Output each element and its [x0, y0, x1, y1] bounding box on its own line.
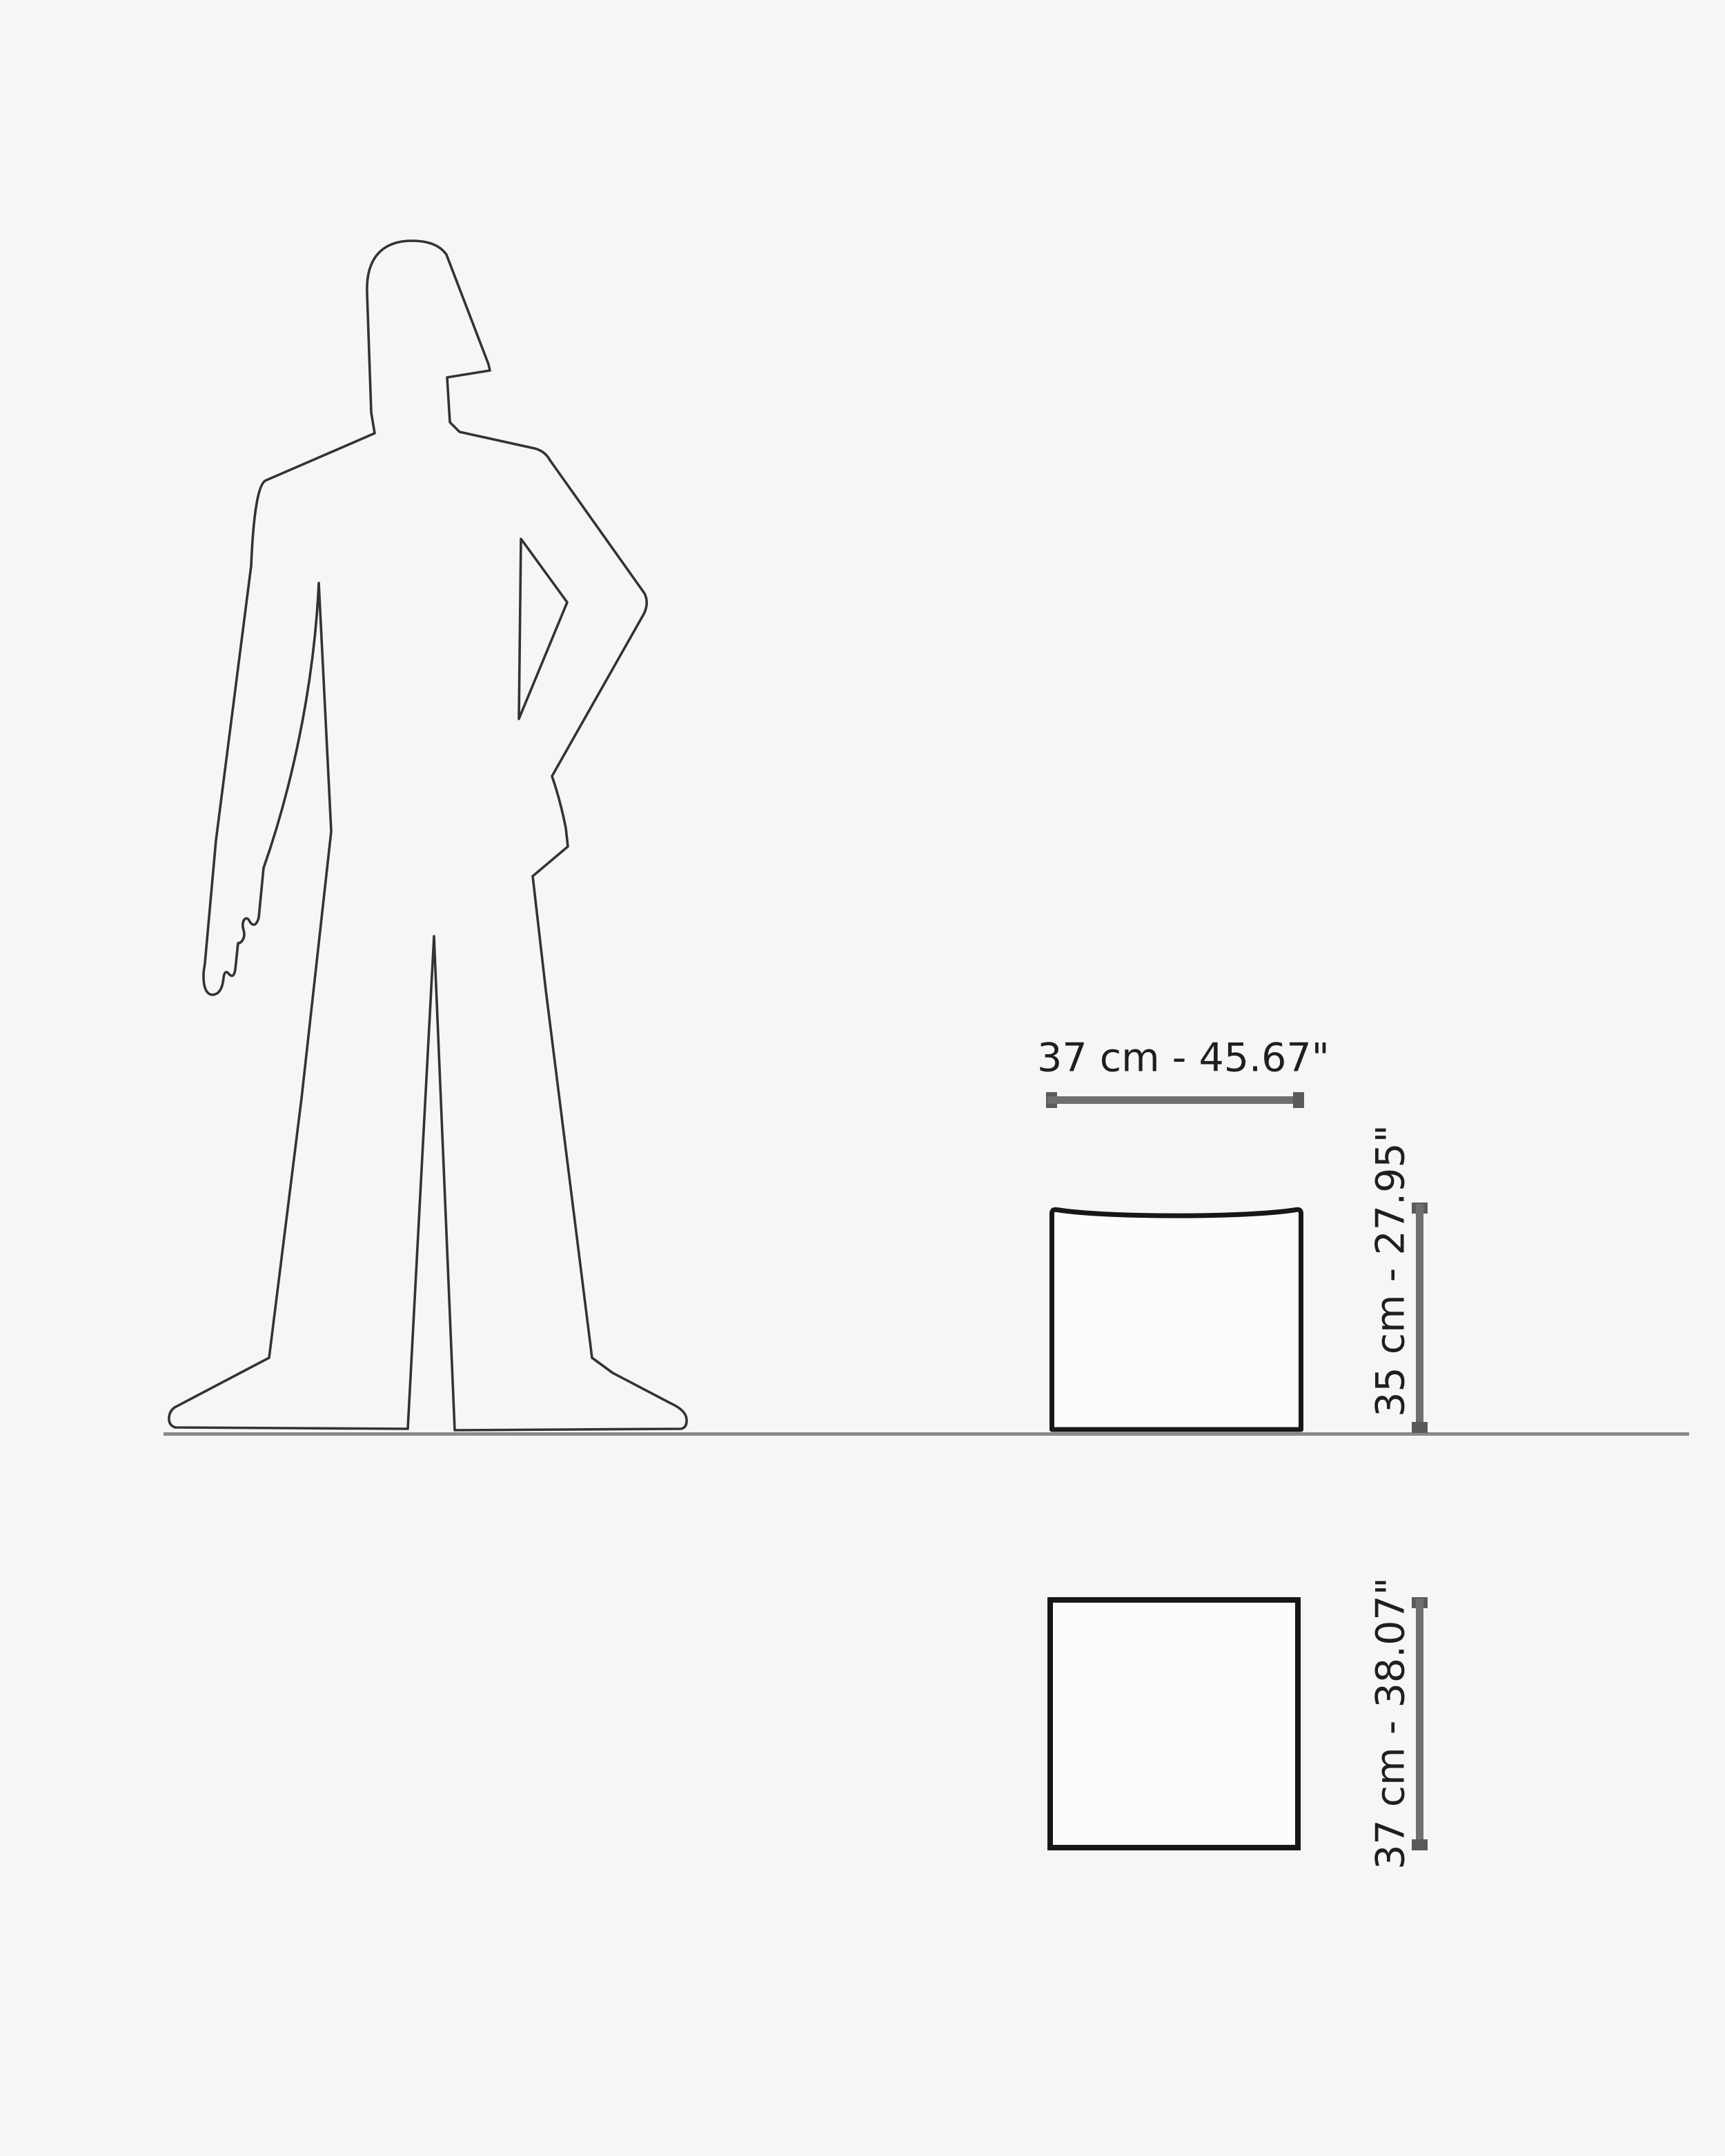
stool-front-outline: [1052, 1209, 1301, 1430]
dimension-cap: [1412, 1422, 1428, 1433]
dimension-cap: [1293, 1092, 1304, 1108]
dimension-bar: [1047, 1096, 1303, 1104]
height-dimension-line: [1412, 1203, 1428, 1433]
dimension-cap: [1412, 1839, 1428, 1850]
height-dimension-label: 35 cm - 27.95": [1372, 1125, 1411, 1417]
width-dimension-line: [1046, 1092, 1304, 1108]
standing-human-silhouette-icon: [169, 241, 687, 1430]
ground-line: [164, 1432, 1689, 1436]
width-dimension-label: 37 cm - 45.67": [1037, 1039, 1330, 1078]
depth-dimension-label: 37 cm - 38.07": [1372, 1577, 1411, 1870]
depth-dimension-line: [1412, 1597, 1428, 1850]
dimension-bar: [1416, 1599, 1423, 1849]
diagram-scene: [0, 0, 1725, 2156]
dimension-bar: [1416, 1204, 1423, 1432]
stool-top-outline: [1050, 1600, 1298, 1848]
dimension-diagram-canvas: 37 cm - 45.67" 35 cm - 27.95" 37 cm - 38…: [0, 0, 1725, 2156]
